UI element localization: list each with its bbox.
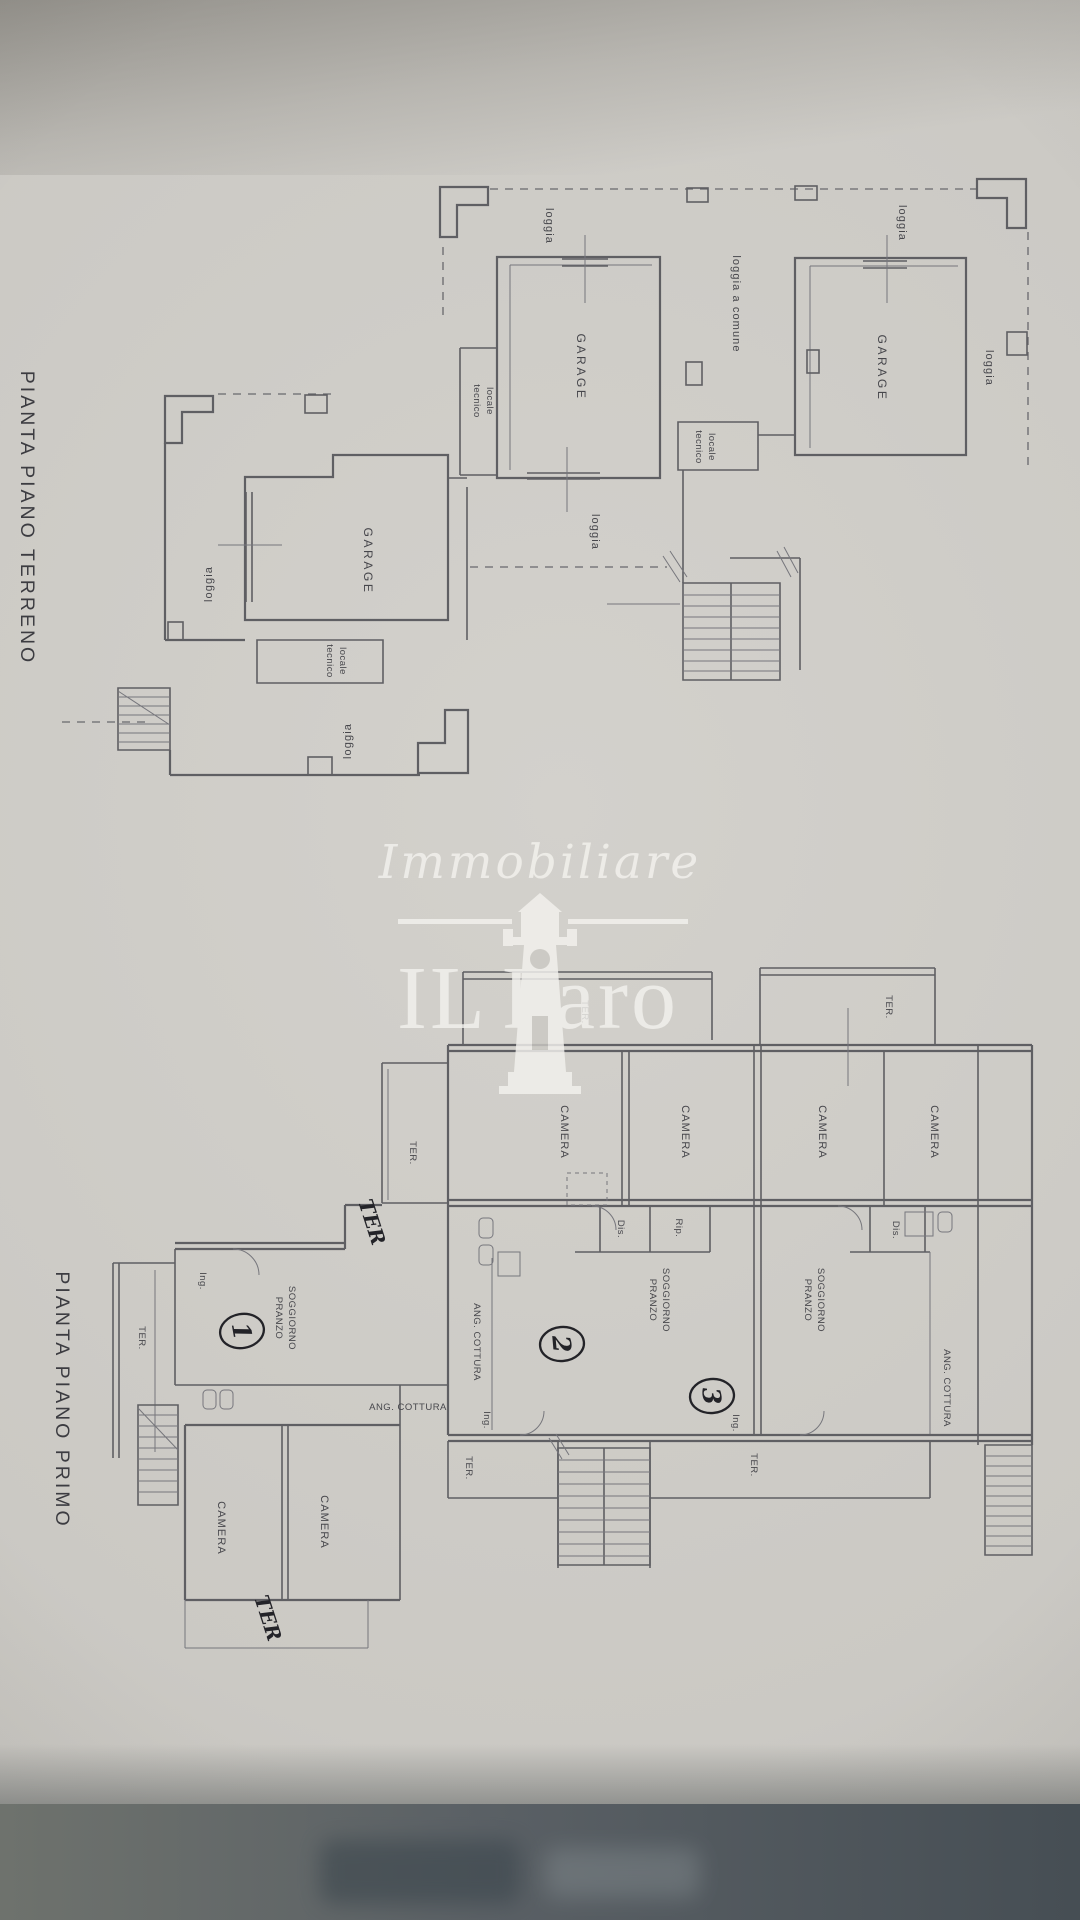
wall-segment	[282, 1425, 288, 1600]
wall-segment	[175, 1385, 448, 1600]
wall-step-corner	[440, 187, 488, 237]
room-label-soggiorno-pranzo: SOGGIORNO PRANZO	[802, 1268, 826, 1332]
unit-number: 3	[696, 1386, 726, 1406]
room-label-camera: CAMERA	[928, 1105, 940, 1159]
fixture	[479, 1218, 493, 1238]
ground-floor-plan-drawing: GARAGE GARAGE GARAGE loggia loggia loggi…	[16, 179, 1028, 775]
room-label-ter: TER.	[407, 1141, 418, 1165]
pillar	[168, 622, 183, 640]
stairs-arrows	[549, 1434, 569, 1459]
label-line-locale: locale	[706, 433, 717, 461]
lighthouse-fin-left	[503, 929, 513, 946]
wall-segment	[448, 1200, 1032, 1206]
room-label-ter: TER.	[463, 1456, 474, 1480]
watermark-name-text: ILFaro	[397, 949, 679, 1048]
fixture	[938, 1212, 952, 1232]
terrace-walls	[448, 1441, 930, 1568]
room-label-rip: Rip.	[673, 1219, 684, 1238]
terrace-walls	[382, 1063, 448, 1203]
pillar	[687, 188, 708, 202]
label-line-soggiorno: SOGGIORNO	[286, 1286, 297, 1350]
stairs-outline	[558, 1448, 650, 1565]
room-label-loggia: loggia	[203, 566, 215, 602]
fixture	[905, 1212, 933, 1236]
first-floor-walls	[113, 968, 1032, 1648]
wall-step-corner	[165, 396, 213, 443]
light-beam-left	[398, 919, 512, 924]
label-line-pranzo: PRANZO	[647, 1279, 658, 1322]
handwritten-annotations: TER TER 1 2 3	[217, 1196, 735, 1644]
room-label-ter: TER.	[748, 1453, 759, 1477]
label-line-tecnico: tecnico	[471, 384, 482, 418]
floor-plan-photo: GARAGE GARAGE GARAGE loggia loggia loggi…	[0, 0, 1080, 1920]
wall-segment	[170, 750, 420, 775]
pillar	[795, 186, 817, 200]
room-label-camera: CAMERA	[679, 1105, 691, 1159]
label-line-soggiorno: SOGGIORNO	[815, 1268, 826, 1332]
room-label-loggia: loggia	[543, 208, 555, 244]
room-label-loggia-comune: loggia a comune	[730, 255, 742, 352]
room-label-ing: Ing.	[197, 1272, 208, 1290]
agency-watermark: Immobiliare ILFaro	[378, 835, 701, 1094]
watermark-script-text: Immobiliare	[378, 835, 701, 890]
stairwell-walls	[683, 470, 800, 670]
wall-segment	[165, 443, 245, 640]
room-label-locale-tecnico: locale tecnico	[471, 384, 495, 418]
lighthouse-fin-right	[567, 929, 577, 946]
stairs-steps	[118, 691, 170, 742]
light-beam-right	[568, 919, 688, 924]
label-line-pranzo: PRANZO	[802, 1279, 813, 1322]
room-label-loggia: loggia	[589, 514, 601, 550]
pillar	[1007, 332, 1027, 355]
garage-left-walls	[245, 455, 448, 620]
wall-segment	[175, 1205, 382, 1249]
watermark-name-il: IL	[397, 949, 488, 1048]
handwritten-unit-number-1: 1	[217, 1310, 266, 1351]
lighthouse-gallery	[512, 937, 568, 945]
room-label-locale-tecnico: locale tecnico	[693, 430, 717, 464]
wall-step-corner	[977, 179, 1026, 228]
lighthouse-base	[508, 1072, 572, 1086]
room-label-camera: CAMERA	[816, 1105, 828, 1159]
lighthouse-roof	[518, 893, 562, 912]
pillar	[308, 757, 332, 775]
first-floor-stairs	[138, 1405, 1032, 1565]
label-line-locale: locale	[484, 387, 495, 415]
room-label-garage: GARAGE	[875, 335, 889, 402]
lighthouse-base-step	[499, 1086, 581, 1094]
stairs-outline	[985, 1445, 1032, 1555]
ground-floor-walls	[165, 179, 1026, 775]
fixture	[479, 1245, 493, 1265]
bathroom-fixtures	[203, 1173, 952, 1409]
room-label-soggiorno-pranzo: SOGGIORNO PRANZO	[647, 1268, 671, 1332]
pillar	[305, 395, 327, 413]
watermark-name-faro: Faro	[502, 949, 679, 1048]
corridor-walls	[448, 478, 467, 640]
fixture	[203, 1390, 216, 1409]
room-label-ing: Ing.	[481, 1411, 492, 1429]
wall-segment	[754, 1206, 761, 1435]
stairs-outline	[683, 583, 780, 680]
wall-segment	[448, 1435, 1032, 1441]
room-label-ter: TER.	[883, 995, 894, 1019]
label-line-soggiorno: SOGGIORNO	[660, 1268, 671, 1332]
locale-tecnico-walls	[257, 640, 383, 683]
document-scan-svg: GARAGE GARAGE GARAGE loggia loggia loggi…	[0, 0, 1080, 1920]
stairs-outline	[138, 1405, 178, 1505]
handwritten-unit-number-3: 3	[689, 1377, 736, 1415]
room-label-ter: TER.	[136, 1326, 147, 1350]
room-label-loggia: loggia	[896, 205, 908, 241]
ground-floor-pillars	[168, 186, 1027, 775]
room-label-ing: Ing.	[730, 1414, 741, 1432]
label-line-tecnico: tecnico	[324, 644, 335, 678]
wall-step-corner	[418, 710, 468, 773]
handwritten-ter: TER	[353, 1196, 390, 1248]
room-label-ang-cottura: ANG. COTTURA	[941, 1349, 952, 1427]
room-label-garage: GARAGE	[574, 334, 588, 401]
room-label-dis: Dis.	[615, 1220, 626, 1238]
room-label-loggia: loggia	[983, 350, 995, 386]
blurred-smudge	[320, 1840, 520, 1904]
room-label-ang-cottura: ANG. COTTURA	[471, 1303, 482, 1381]
room-label-camera: CAMERA	[558, 1105, 570, 1159]
ground-floor-labels: GARAGE GARAGE GARAGE loggia loggia loggi…	[203, 205, 995, 759]
fixture	[220, 1390, 233, 1409]
label-line-pranzo: PRANZO	[273, 1297, 284, 1340]
unit-number: 1	[226, 1320, 258, 1342]
room-label-camera: CAMERA	[215, 1501, 227, 1555]
lighthouse-lantern	[521, 911, 559, 938]
label-line-locale: locale	[337, 647, 348, 675]
blurred-smudge	[545, 1848, 700, 1898]
terrace-walls	[113, 1249, 175, 1458]
ground-floor-stairs	[118, 547, 798, 750]
photo-bottom-dark-band	[0, 1804, 1080, 1920]
room-label-garage: GARAGE	[361, 528, 375, 595]
pillar	[686, 362, 702, 385]
ground-floor-title: PIANTA PIANO TERRENO	[16, 371, 38, 665]
handwritten-unit-number-2: 2	[539, 1325, 586, 1363]
garage-door-lines	[246, 492, 252, 602]
fixture	[498, 1252, 520, 1276]
garage-door-lines	[527, 259, 608, 479]
wall-notch	[807, 350, 819, 373]
first-floor-title: PIANTA PIANO PRIMO	[51, 1271, 73, 1528]
room-label-ang-cottura: ANG. COTTURA	[369, 1402, 447, 1413]
room-label-camera: CAMERA	[318, 1495, 330, 1549]
stairs-steps	[138, 1408, 178, 1492]
stairs-steps	[985, 1456, 1032, 1546]
room-label-locale-tecnico: locale tecnico	[324, 644, 348, 678]
room-label-loggia: loggia	[342, 723, 354, 759]
unit-number: 2	[546, 1333, 576, 1354]
garage-door-lines	[863, 261, 907, 268]
room-label-soggiorno-pranzo: SOGGIORNO PRANZO	[273, 1286, 297, 1350]
wall-segment	[575, 1206, 930, 1252]
room-label-dis: Dis.	[890, 1221, 901, 1239]
door-swing-ticks	[218, 235, 887, 545]
label-line-tecnico: tecnico	[693, 430, 704, 464]
